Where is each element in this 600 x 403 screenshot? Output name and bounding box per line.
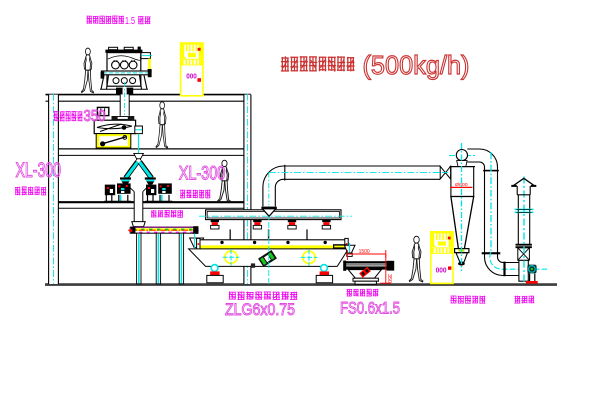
svg-text:350: 350 bbox=[386, 274, 392, 283]
svg-text:FS0.6x1.5: FS0.6x1.5 bbox=[340, 299, 400, 317]
svg-text:XL-300: XL-300 bbox=[16, 158, 62, 182]
svg-text:350: 350 bbox=[84, 108, 106, 125]
svg-text:000: 000 bbox=[186, 72, 197, 81]
svg-text:ZLG6x0.75: ZLG6x0.75 bbox=[225, 301, 295, 319]
svg-text:1.5: 1.5 bbox=[125, 15, 135, 27]
svg-text:(500kg/h): (500kg/h) bbox=[363, 50, 470, 80]
svg-text:000: 000 bbox=[436, 265, 447, 274]
svg-text:1500: 1500 bbox=[359, 249, 370, 255]
svg-text:XL-300: XL-300 bbox=[179, 162, 226, 184]
